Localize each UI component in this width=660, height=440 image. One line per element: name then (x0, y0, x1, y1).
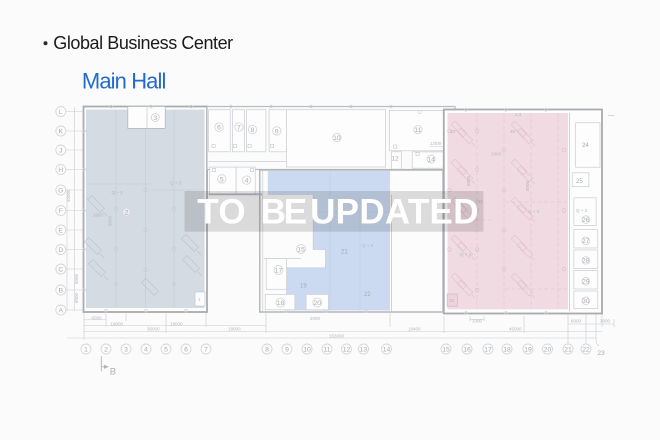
svg-text:21: 21 (341, 250, 348, 256)
svg-text:12: 12 (343, 347, 351, 354)
svg-text:32: 32 (449, 298, 455, 303)
svg-text:H: H (58, 167, 63, 174)
svg-text:18400: 18400 (408, 327, 421, 332)
svg-text:40000: 40000 (66, 189, 71, 202)
svg-text:30: 30 (582, 298, 590, 305)
svg-text:15: 15 (442, 347, 450, 354)
svg-text:Q + 3: Q + 3 (170, 181, 182, 186)
svg-text:25: 25 (576, 179, 583, 185)
svg-text:16: 16 (463, 347, 471, 354)
svg-text:5: 5 (164, 347, 168, 354)
svg-text:Q + 3: Q + 3 (528, 209, 540, 214)
svg-text:18: 18 (503, 347, 511, 354)
svg-text:18: 18 (277, 300, 285, 307)
svg-text:2693: 2693 (93, 213, 104, 218)
svg-text:27: 27 (582, 238, 590, 245)
svg-text:BE: BE (261, 192, 306, 231)
svg-text:10: 10 (303, 347, 311, 354)
svg-text:3: 3 (153, 115, 157, 122)
svg-text:B: B (59, 288, 64, 295)
svg-text:10: 10 (333, 135, 341, 142)
svg-text:F: F (59, 208, 63, 215)
svg-text:14: 14 (427, 157, 435, 164)
svg-text:1/300: 1/300 (430, 141, 442, 146)
svg-text:18000: 18000 (170, 321, 183, 326)
svg-text:L: L (59, 109, 63, 116)
svg-text:20: 20 (544, 347, 552, 354)
svg-text:19: 19 (524, 347, 532, 354)
svg-text:1900: 1900 (491, 152, 502, 157)
svg-text:45°: 45° (450, 129, 457, 134)
svg-text:K: K (59, 129, 64, 136)
svg-text:3: 3 (124, 347, 128, 354)
svg-text:—: — (608, 113, 614, 119)
svg-text:Q + 3: Q + 3 (362, 243, 374, 248)
svg-text:6000: 6000 (74, 292, 79, 303)
svg-text:Q + 3: Q + 3 (112, 190, 124, 195)
svg-text:13: 13 (360, 347, 368, 354)
svg-text:UPDATED: UPDATED (310, 192, 479, 231)
svg-text:23: 23 (597, 350, 605, 357)
svg-text:17: 17 (484, 347, 492, 354)
svg-text:A: A (59, 308, 64, 315)
svg-text:45000: 45000 (509, 327, 522, 332)
svg-text:7: 7 (237, 125, 241, 132)
svg-text:E: E (59, 228, 64, 235)
svg-text:36000: 36000 (147, 327, 160, 332)
svg-text:21: 21 (564, 347, 572, 354)
svg-text:14: 14 (383, 347, 391, 354)
svg-text:2.3: 2.3 (515, 112, 522, 117)
svg-text:29: 29 (582, 279, 590, 286)
svg-text:2000: 2000 (310, 316, 321, 321)
svg-text:B: B (110, 367, 116, 378)
svg-text:6: 6 (184, 347, 188, 354)
svg-text:17: 17 (275, 268, 283, 275)
svg-text:1000: 1000 (472, 318, 483, 323)
svg-text:26: 26 (582, 217, 590, 224)
svg-text:TO: TO (197, 192, 246, 231)
svg-text:9: 9 (285, 347, 289, 354)
svg-text:6000: 6000 (74, 273, 79, 284)
svg-text:12: 12 (392, 157, 399, 163)
svg-text:18000: 18000 (228, 327, 241, 332)
svg-text:6000: 6000 (571, 319, 582, 324)
svg-text:7: 7 (204, 347, 208, 354)
svg-text:11: 11 (323, 347, 330, 354)
svg-text:C: C (58, 267, 63, 274)
svg-text:18000: 18000 (111, 321, 124, 326)
svg-text:Q + 3: Q + 3 (460, 252, 472, 257)
svg-text:28: 28 (582, 258, 590, 265)
svg-text:J: J (59, 148, 62, 155)
svg-text:Global Business Center: Global Business Center (53, 33, 233, 53)
svg-text:153000: 153000 (329, 333, 345, 338)
svg-text:4: 4 (144, 347, 148, 354)
svg-text:3000: 3000 (600, 319, 611, 324)
svg-text:1: 1 (84, 347, 88, 354)
svg-text:8: 8 (265, 347, 269, 354)
svg-text:8: 8 (251, 127, 255, 134)
svg-text:20: 20 (314, 300, 322, 307)
svg-text:11: 11 (414, 127, 421, 134)
svg-text:2: 2 (125, 210, 129, 217)
svg-text:D: D (58, 247, 63, 254)
svg-text:6000: 6000 (525, 180, 530, 191)
svg-text:G: G (58, 188, 63, 195)
svg-text:19: 19 (300, 284, 307, 290)
svg-text:5000: 5000 (108, 215, 113, 226)
svg-text:24: 24 (582, 143, 589, 149)
svg-text:22: 22 (582, 347, 590, 354)
svg-text:Main Hall: Main Hall (82, 69, 166, 94)
svg-text:6: 6 (217, 125, 221, 132)
svg-text:4: 4 (245, 178, 249, 185)
svg-text:6000: 6000 (466, 175, 471, 186)
svg-text:15: 15 (297, 247, 305, 254)
svg-text:22: 22 (364, 292, 371, 298)
svg-text:5: 5 (220, 176, 224, 183)
svg-text:9: 9 (275, 128, 279, 135)
svg-text:6000: 6000 (92, 316, 103, 321)
svg-text:2: 2 (104, 347, 108, 354)
svg-text:45°: 45° (510, 129, 517, 134)
svg-text:Q + 3: Q + 3 (576, 208, 588, 213)
